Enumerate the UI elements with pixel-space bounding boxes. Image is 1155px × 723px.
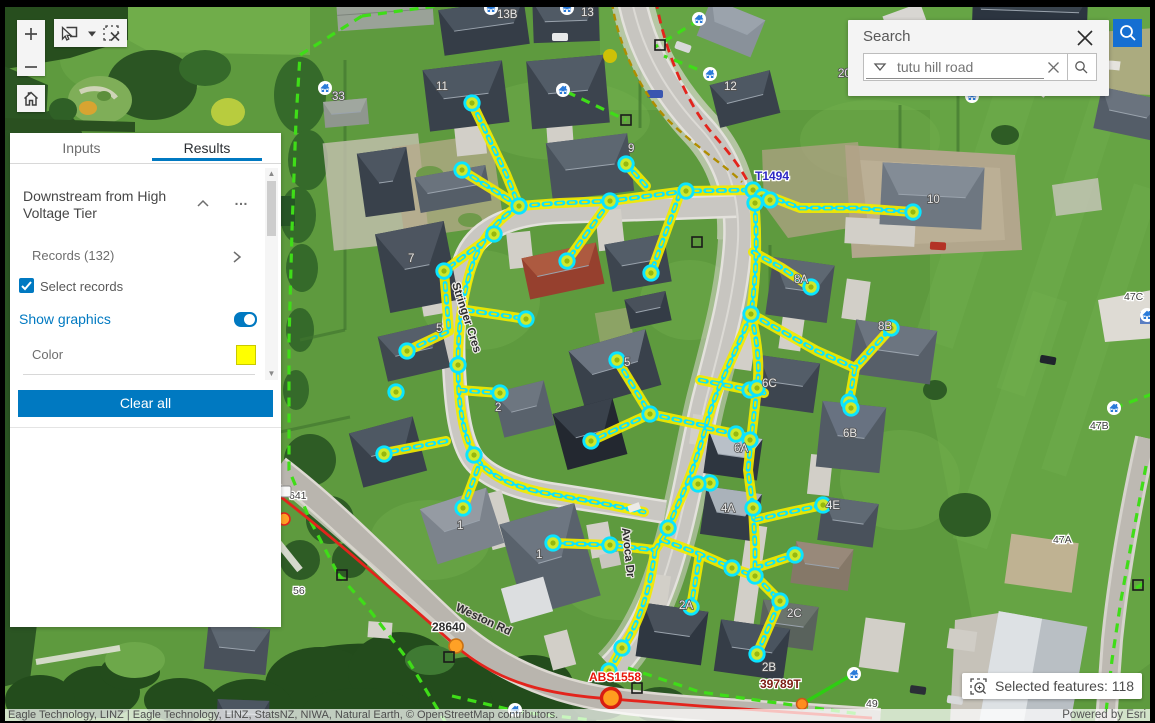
svg-text:9: 9 <box>628 143 634 155</box>
svg-text:6C: 6C <box>762 378 777 390</box>
svg-text:2A: 2A <box>679 600 693 612</box>
svg-text:5: 5 <box>624 357 630 369</box>
svg-text:1: 1 <box>536 549 542 561</box>
svg-text:56: 56 <box>293 585 305 597</box>
svg-text:47A: 47A <box>1053 534 1072 546</box>
svg-text:2: 2 <box>495 402 501 414</box>
svg-text:6B: 6B <box>843 428 857 440</box>
svg-text:47B: 47B <box>1090 420 1109 432</box>
svg-text:33: 33 <box>332 91 345 103</box>
svg-text:13: 13 <box>581 7 594 19</box>
svg-text:11: 11 <box>436 81 448 93</box>
svg-text:T1494: T1494 <box>755 169 789 183</box>
svg-text:4A: 4A <box>721 503 735 515</box>
svg-text:10: 10 <box>927 194 940 206</box>
svg-text:13B: 13B <box>497 9 518 21</box>
svg-text:47C: 47C <box>1124 291 1144 303</box>
svg-text:28640: 28640 <box>432 620 466 634</box>
svg-text:641: 641 <box>289 490 307 502</box>
svg-text:2B: 2B <box>762 662 776 674</box>
svg-text:5: 5 <box>436 323 442 335</box>
svg-text:39789T: 39789T <box>760 677 801 691</box>
svg-text:12: 12 <box>724 81 737 93</box>
svg-text:7: 7 <box>408 253 414 265</box>
svg-text:6A: 6A <box>734 443 748 455</box>
svg-text:2C: 2C <box>787 608 802 620</box>
svg-text:1: 1 <box>457 520 463 532</box>
svg-text:4E: 4E <box>826 500 840 512</box>
svg-text:ABS1558: ABS1558 <box>589 670 641 684</box>
svg-text:8B: 8B <box>878 321 892 333</box>
svg-text:8A: 8A <box>794 274 808 286</box>
